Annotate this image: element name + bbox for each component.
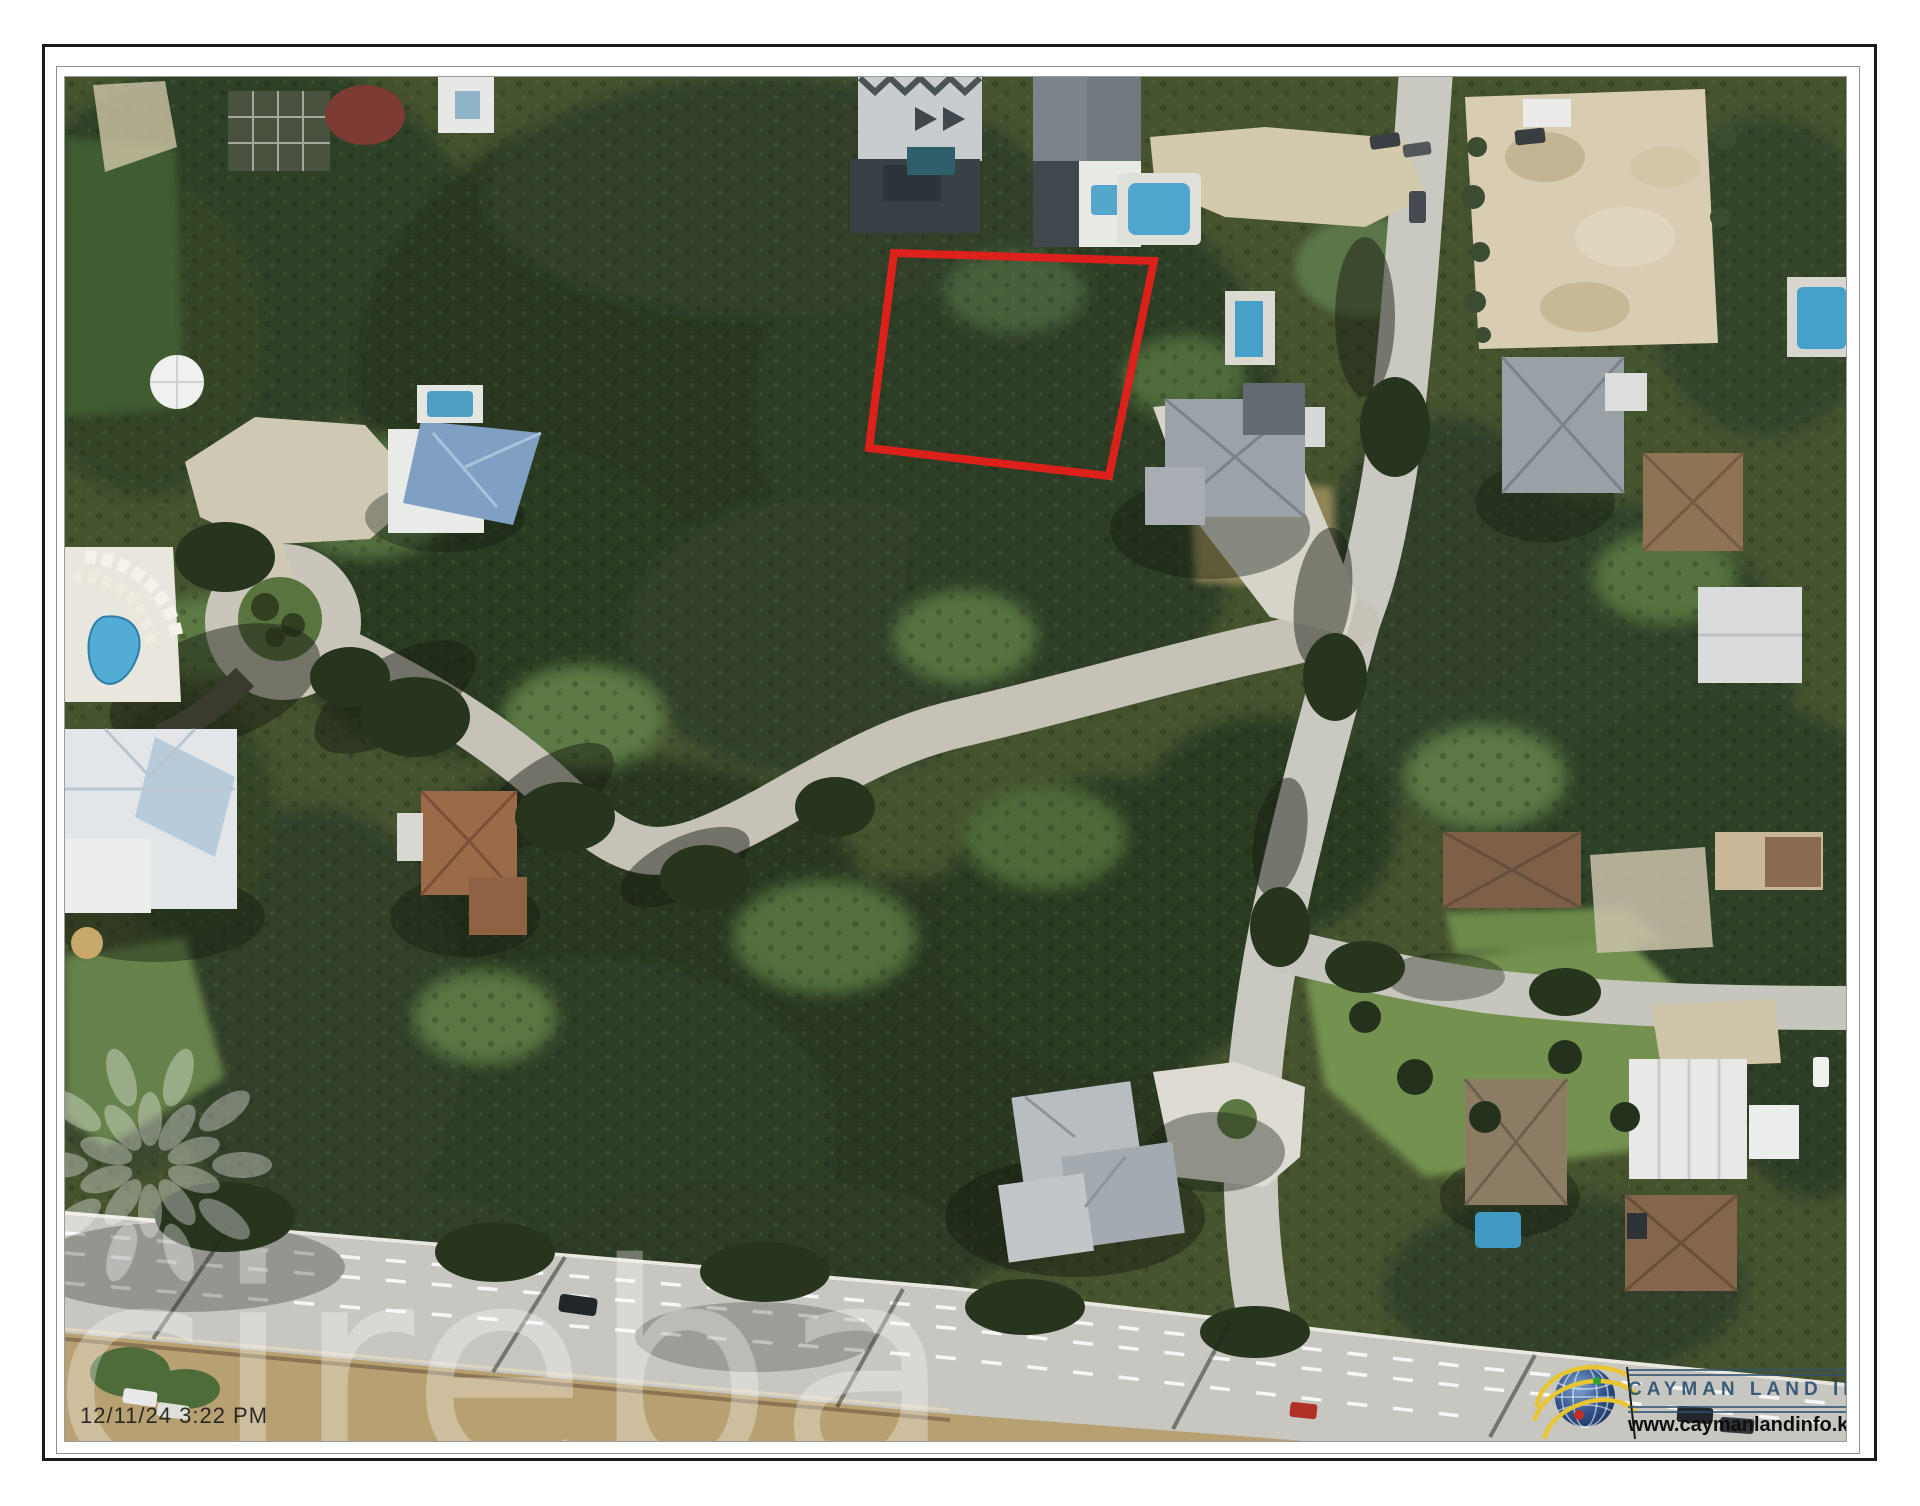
pool bbox=[427, 391, 473, 417]
timestamp: 12/11/24 3:22 PM bbox=[80, 1403, 268, 1429]
aerial-scene bbox=[65, 77, 1846, 1441]
pool-terrace bbox=[65, 547, 181, 702]
pool bbox=[1475, 1212, 1521, 1248]
logo-url: www.caymanlandinfo.ky bbox=[1628, 1414, 1846, 1437]
logo-title: CAYMAN LAND INFO bbox=[1628, 1379, 1846, 1401]
cleared-lot bbox=[1461, 89, 1737, 349]
pool bbox=[1797, 287, 1846, 349]
pool bbox=[1235, 301, 1263, 357]
aerial-photo: cireba 12/11/24 3:22 PM bbox=[65, 77, 1846, 1441]
house-roof bbox=[850, 77, 982, 233]
logo-rule bbox=[1628, 1374, 1846, 1376]
page: cireba 12/11/24 3:22 PM bbox=[0, 0, 1920, 1506]
caymanlandinfo-logo: CAYMAN LAND INFO www.caymanlandinfo.ky bbox=[1535, 1357, 1846, 1441]
driveway bbox=[1651, 999, 1781, 1067]
gazebo-roof bbox=[150, 355, 204, 409]
house-roof bbox=[65, 729, 265, 962]
logo-rule bbox=[1628, 1406, 1846, 1408]
shed-roof bbox=[1523, 99, 1571, 127]
pool bbox=[1117, 173, 1201, 245]
logo-rule bbox=[1628, 1369, 1846, 1371]
logo-rule bbox=[1628, 1411, 1846, 1413]
globe-icon bbox=[1523, 1353, 1643, 1441]
gazebo-roof bbox=[71, 927, 103, 959]
driveway bbox=[1590, 847, 1713, 953]
